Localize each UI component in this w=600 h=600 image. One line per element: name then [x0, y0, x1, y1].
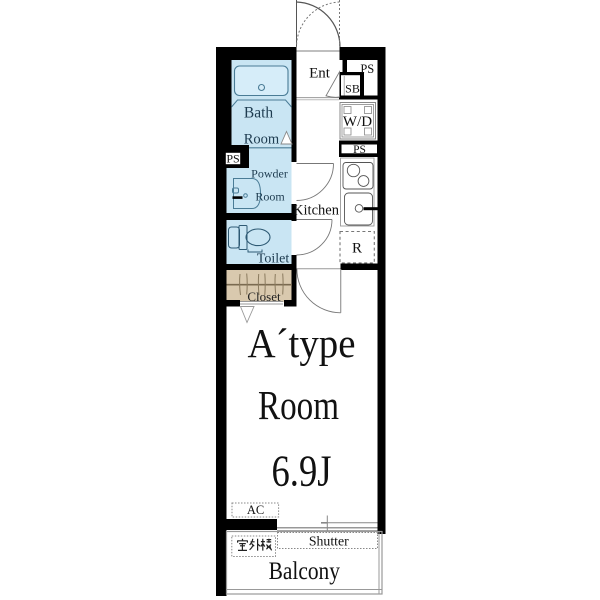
svg-text:PS: PS	[226, 152, 239, 166]
svg-text:W/D: W/D	[343, 114, 372, 130]
svg-text:A´type: A´type	[248, 320, 356, 366]
svg-text:Ent: Ent	[309, 66, 331, 82]
svg-text:Closet: Closet	[247, 289, 281, 304]
svg-text:Room: Room	[244, 132, 280, 148]
svg-text:Room: Room	[258, 382, 339, 428]
svg-text:Toilet: Toilet	[257, 252, 290, 267]
svg-text:Balcony: Balcony	[269, 558, 341, 585]
svg-text:6.9J: 6.9J	[272, 447, 332, 496]
svg-text:Powder: Powder	[251, 167, 288, 181]
svg-text:PS: PS	[353, 144, 366, 156]
svg-text:AC: AC	[247, 503, 264, 517]
svg-text:PS: PS	[360, 62, 374, 76]
svg-text:Room: Room	[255, 190, 285, 204]
svg-text:Kitchen: Kitchen	[293, 203, 340, 219]
svg-text:R: R	[352, 241, 362, 257]
svg-text:Bath: Bath	[244, 105, 274, 122]
svg-text:SB: SB	[345, 82, 360, 96]
svg-text:Shutter: Shutter	[309, 534, 349, 549]
